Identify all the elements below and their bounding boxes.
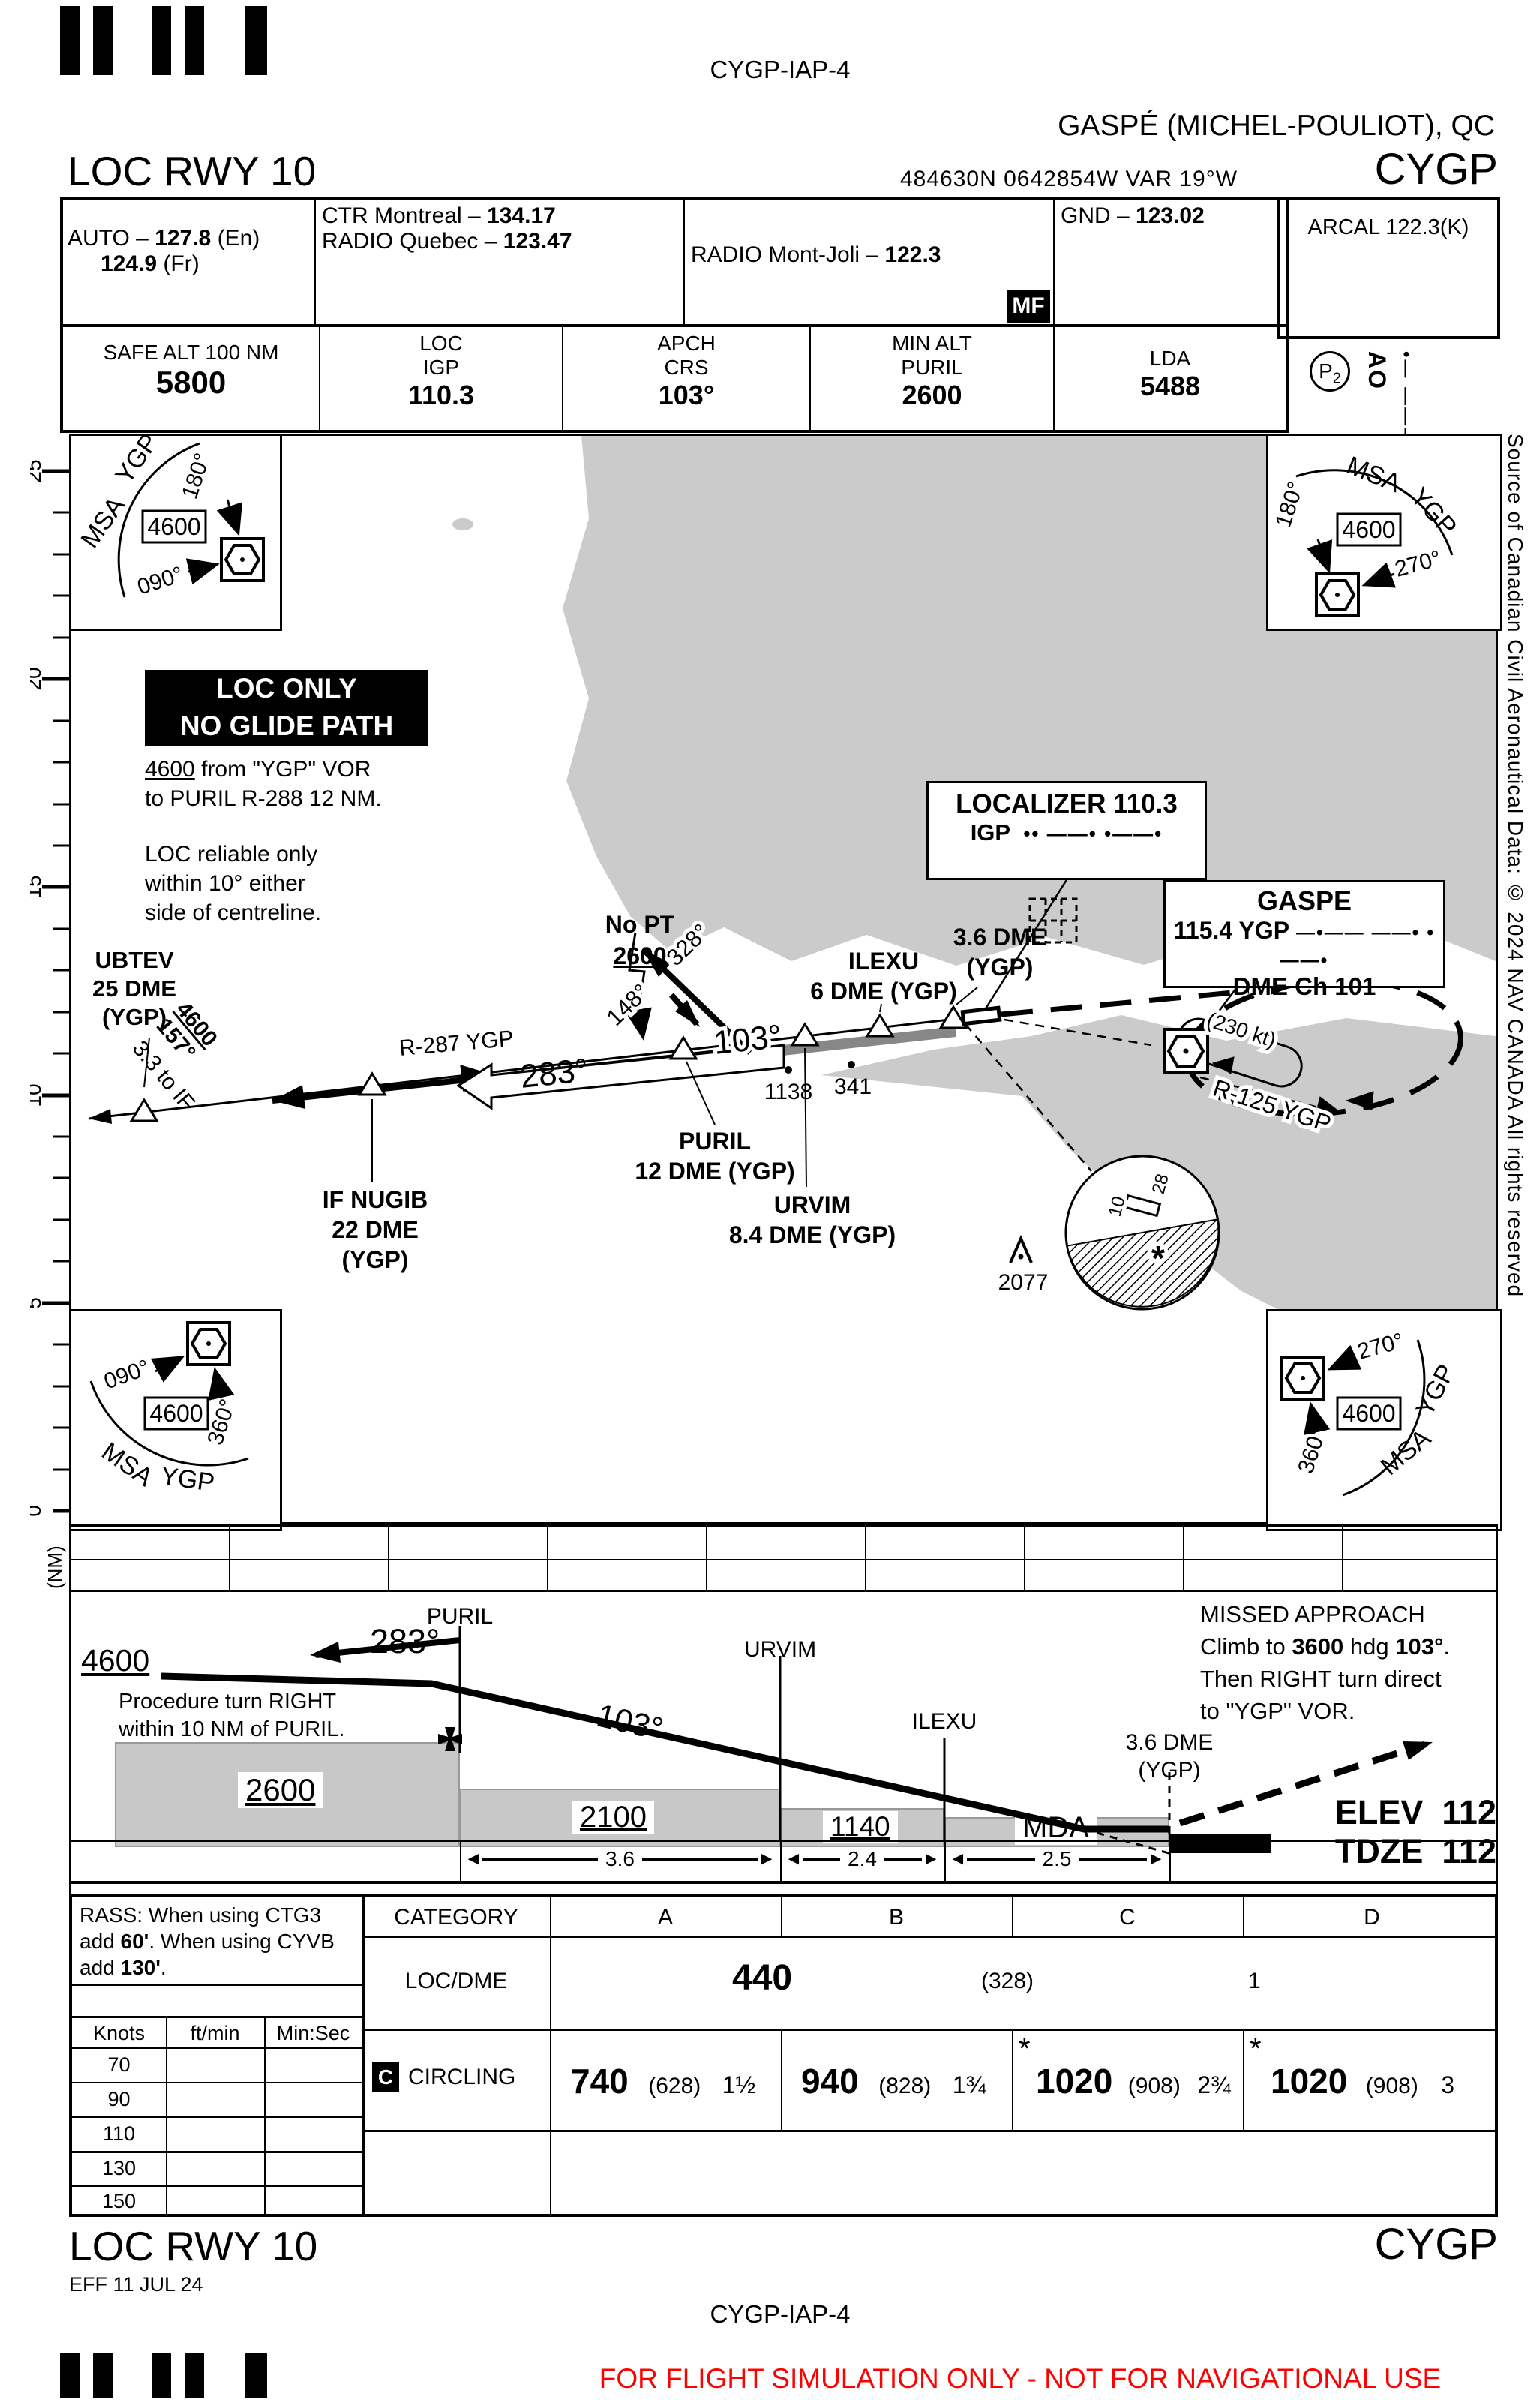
distance-2-4: 2.4 — [848, 1847, 877, 1871]
arcal-morse: •— ——— — [1395, 351, 1416, 377]
rass-l2post: . When using CYVB — [149, 1930, 334, 1953]
circling-c-mda: 1020 — [1036, 2062, 1112, 2101]
circling-label: CIRCLING — [408, 2065, 515, 2090]
gaspe-dme-channel: DME Ch 101 — [1166, 972, 1443, 1001]
msa-bearing-360: 360° — [1293, 1425, 1331, 1476]
arcal-ident: AO — [1363, 351, 1391, 384]
lda-box: LDA 5488 — [1055, 327, 1286, 430]
ygp-vordme-symbol — [1164, 1029, 1208, 1073]
elev-value: 112 — [1442, 1793, 1496, 1831]
rass-l2pre: add — [80, 1930, 121, 1953]
msa-navaid: YGP — [110, 436, 164, 489]
comm-ctr: CTR Montreal – 134.17 RADIO Quebec – 123… — [316, 200, 685, 324]
radio-quebec-freq: 123.47 — [503, 229, 572, 254]
procedure-turn-note: Procedure turn RIGHT within 10 NM of PUR… — [119, 1688, 344, 1744]
spot-elevation-341: 341 — [823, 1074, 883, 1100]
elev-label: ELEV — [1335, 1793, 1424, 1831]
ruler-20: 20 — [30, 667, 45, 690]
ctr-label: CTR Montreal – — [322, 203, 487, 228]
rass-l3bold: 130' — [121, 1956, 161, 1979]
reliability-line3: side of centreline. — [145, 898, 321, 927]
mf-badge: MF — [1007, 290, 1050, 323]
circling-cat-b: 940 (828) 1¾ — [801, 2061, 986, 2101]
arcal-box: ARCAL 122.3(K) — [1277, 197, 1500, 339]
puril-name: PURIL — [602, 1126, 827, 1156]
obstacle-symbol — [1010, 1239, 1031, 1263]
chart-id-top: CYGP-IAP-4 — [555, 56, 1005, 84]
nopt-label: No PT 2600 — [593, 909, 686, 972]
radio-quebec-label: RADIO Quebec – — [322, 229, 503, 254]
locdme-mda: 440 — [732, 1957, 792, 1999]
procedure-title: LOC RWY 10 — [68, 147, 316, 195]
safe-alt-value: 5800 — [63, 365, 319, 401]
ubtev-name: UBTEV — [82, 946, 187, 975]
circling-a-mda: 740 — [571, 2062, 629, 2101]
faf-maltese-cross — [438, 1727, 462, 1751]
p2-number: 2 — [1333, 371, 1341, 387]
nugib-name: IF NUGIB — [296, 1185, 454, 1215]
category-c: C — [1012, 1905, 1243, 1930]
msa-inset-topright: 4600 MSA YGP 180° 270° — [1266, 434, 1502, 631]
gaspe-name: GASPE — [1166, 885, 1443, 917]
circling-d-hat: (908) — [1366, 2074, 1418, 2098]
note-line2: to PURIL R-288 12 NM. — [145, 784, 382, 813]
nugib-label: IF NUGIB 22 DME (YGP) — [296, 1185, 454, 1275]
runway-profile-bar — [1169, 1834, 1271, 1853]
airport-icao-bottom: CYGP — [1375, 2219, 1498, 2269]
distance-puril-urvim: ◄3.6► — [461, 1840, 779, 1879]
speed-row-90: 90 — [72, 2088, 166, 2111]
speed-row-130: 130 — [72, 2157, 166, 2180]
gaspe-vor-box: GASPE 115.4 YGP —•—— ——• •——• DME Ch 101 — [1163, 880, 1445, 988]
dme36-profile-label: 3.6 DME (YGP) — [1113, 1729, 1226, 1784]
airport-coordinates: 484630N 0642854W VAR 19°W — [900, 167, 1238, 192]
airport-star: * — [1151, 1239, 1165, 1278]
spot-elevation-1138-dot — [785, 1066, 792, 1074]
apch-crs-box: APCH CRS 103° — [563, 327, 811, 430]
circling-cat-c: 1020 (908) 2¾ — [1036, 2061, 1231, 2101]
ubtev-dme: 25 DME — [82, 975, 187, 1003]
circling-d-star: * — [1250, 2032, 1262, 2066]
registration-barcode-bottom — [60, 2353, 267, 2398]
comm-auto: AUTO – 127.8 (En) 124.9 (Fr) — [63, 200, 316, 324]
reliability-line1: LOC reliable only — [145, 840, 321, 869]
loc-reliability-note: LOC reliable only within 10° either side… — [145, 840, 321, 927]
category-b: B — [781, 1905, 1012, 1930]
speed-row-150: 150 — [72, 2190, 166, 2213]
outbound-course-label: 283° — [518, 1052, 590, 1095]
circling-b-mda: 940 — [801, 2062, 859, 2101]
rass-l3post: . — [161, 1956, 167, 1979]
ruler-25: 25 — [30, 459, 45, 482]
r287-label: R-287 YGP — [398, 1026, 515, 1061]
nm-scale-strip — [69, 1524, 1498, 1592]
urvim-label: URVIM 8.4 DME (YGP) — [700, 1190, 925, 1250]
circling-d-vis: 3 — [1441, 2071, 1454, 2098]
pt-note-line2: within 10 NM of PURIL. — [119, 1716, 344, 1744]
ruler-0: 0 — [30, 1505, 45, 1517]
msa-label: MSA — [96, 1437, 158, 1492]
minima-table: RASS: When using CTG3 add 60'. When usin… — [69, 1894, 1498, 2217]
airport-title: GASPÉ (MICHEL-POULIOT), QC — [1058, 110, 1495, 143]
nopt-altitude: 2600 — [593, 940, 686, 972]
dme36-name: 3.6 DME — [940, 922, 1060, 952]
msa-label: MSA — [1376, 1423, 1436, 1481]
msa-altitude: 4600 — [147, 513, 200, 540]
comm-montjoli: RADIO Mont-Joli – 122.3 MF — [685, 200, 1055, 324]
gnd-label: GND – — [1061, 203, 1136, 228]
loc-ident: IGP — [320, 356, 562, 380]
dme36-label: 3.6 DME (YGP) — [940, 922, 1060, 982]
min-alt-value: 2600 — [811, 380, 1053, 411]
msa-navaid: YGP — [1405, 482, 1462, 542]
speed-header-knots: Knots — [72, 2022, 166, 2045]
msa-bearing-270: 270° — [1355, 1329, 1406, 1365]
circling-b-vis: 1¾ — [953, 2071, 986, 2098]
circling-a-vis: 1½ — [722, 2071, 755, 2098]
localizer-info-box: LOCALIZER 110.3 IGP •• ——• •——• — [926, 781, 1207, 880]
localizer-ident: IGP — [971, 819, 1010, 846]
category-header: CATEGORY — [362, 1905, 550, 1930]
profile-view: 2600 2100 1140 MDA PURIL 4600 283° Proce… — [69, 1592, 1498, 1894]
pt-note-line1: Procedure turn RIGHT — [119, 1688, 344, 1716]
msa-bearing-180: 180° — [177, 450, 215, 502]
circling-c-hat: (908) — [1128, 2074, 1181, 2098]
missed-climb-pre: Climb to — [1200, 1633, 1292, 1660]
registration-barcode-top — [60, 6, 267, 75]
circling-label-cell: C CIRCLING — [372, 2062, 515, 2092]
ilexu-profile-label: ILEXU — [897, 1709, 992, 1735]
radio-montjoli-label: RADIO Mont-Joli – — [691, 242, 884, 267]
p2-symbol: P2 — [1310, 351, 1350, 392]
plan-view: 10 28 * — [69, 434, 1498, 1524]
msa-bearing-180: 180° — [1271, 479, 1309, 530]
reliability-line2: within 10° either — [145, 869, 321, 898]
msa-inset-bottomleft: 4600 MSA YGP 090° 360° — [69, 1309, 282, 1531]
msa-inset-bottomright: 4600 MSA YGP 270° 360° — [1266, 1309, 1502, 1531]
nugib-ref: (YGP) — [296, 1245, 454, 1275]
puril-label: PURIL 12 DME (YGP) — [602, 1126, 827, 1186]
msa-label: MSA — [75, 491, 131, 553]
msa-altitude: 4600 — [1342, 1400, 1395, 1427]
note-rest: from "YGP" VOR — [195, 757, 371, 782]
circling-c-vis: 2¾ — [1197, 2071, 1230, 2098]
nopt-text: No PT — [593, 909, 686, 940]
missed-climb-alt: 3600 — [1292, 1633, 1343, 1660]
apch-label2: CRS — [563, 356, 809, 380]
localizer-morse: •• ——• •——• — [1023, 822, 1163, 845]
procedure-title-bottom: LOC RWY 10 — [69, 2222, 317, 2270]
circling-cat-a: 740 (628) 1½ — [571, 2061, 755, 2101]
dme36-ref: (YGP) — [940, 952, 1060, 982]
comm-table: AUTO – 127.8 (En) 124.9 (Fr) CTR Montrea… — [60, 197, 1289, 433]
lda-value: 5488 — [1055, 371, 1286, 402]
msa-label: MSA — [1343, 451, 1405, 498]
rass-l3pre: add — [80, 1956, 121, 1979]
airport-symbol: 10 28 * — [1066, 1156, 1219, 1309]
comm-gnd: GND – 123.02 — [1055, 200, 1286, 324]
circling-d-mda: 1020 — [1271, 2062, 1347, 2101]
rass-line1: RASS: When using CTG3 — [80, 1902, 357, 1928]
profile-outbound-course: 283° — [370, 1622, 440, 1661]
auto-freq-en: 127.8 — [155, 226, 211, 251]
urvim-name: URVIM — [700, 1190, 925, 1220]
msa-altitude: 4600 — [1342, 516, 1395, 543]
msa-navaid: YGP — [159, 1461, 216, 1497]
loc-freq-box: LOC IGP 110.3 — [320, 327, 563, 430]
dme36-profile-line2: (YGP) — [1113, 1756, 1226, 1784]
radio-montjoli-freq: 122.3 — [884, 242, 941, 267]
rass-l2bold: 60' — [121, 1930, 149, 1953]
msa-bearing-090: 090° — [101, 1355, 153, 1394]
locdme-hat: (328) — [981, 1969, 1034, 1994]
simulation-disclaimer: FOR FLIGHT SIMULATION ONLY - NOT FOR NAV… — [540, 2363, 1500, 2395]
category-d: D — [1243, 1905, 1501, 1930]
obstacle-elevation: 2077 — [987, 1270, 1059, 1296]
gnd-freq: 123.02 — [1136, 203, 1205, 228]
localizer-freq: LOCALIZER 110.3 — [929, 789, 1205, 819]
circling-badge: C — [372, 2062, 399, 2092]
ruler-15: 15 — [30, 875, 45, 898]
locdme-label: LOC/DME — [362, 1969, 550, 1994]
missed-title: MISSED APPROACH — [1200, 1598, 1500, 1630]
missed-line4: to "YGP" VOR. — [1200, 1695, 1500, 1727]
urvim-profile-label: URVIM — [733, 1637, 827, 1663]
airport-icao: CYGP — [1375, 144, 1498, 194]
distance-ilexu-map: ◄2.5► — [946, 1840, 1168, 1879]
ruler-10: 10 — [30, 1083, 45, 1107]
apch-label1: APCH — [563, 332, 809, 356]
source-note: Source of Canadian Civil Aeronautical Da… — [1503, 434, 1527, 1524]
altitude-note: 4600 from "YGP" VOR to PURIL R-288 12 NM… — [145, 755, 382, 813]
circling-b-hat: (828) — [878, 2074, 931, 2098]
puril-dme: 12 DME (YGP) — [602, 1156, 827, 1186]
safe-alt-label: SAFE ALT 100 NM — [63, 341, 319, 365]
gaspe-freq-ident: 115.4 YGP — [1174, 917, 1289, 944]
missed-approach-text: MISSED APPROACH Climb to 3600 hdg 103°. … — [1200, 1598, 1500, 1727]
locdme-vis: 1 — [1248, 1969, 1261, 1994]
speed-header-ftmin: ft/min — [166, 2022, 264, 2045]
speed-header-minsec: Min:Sec — [264, 2022, 362, 2045]
missed-climb-hdg: 103° — [1395, 1633, 1443, 1660]
distance-urvim-ilexu: ◄2.4► — [782, 1840, 943, 1879]
min-alt-fix: PURIL — [811, 356, 1053, 380]
min-alt-box: MIN ALT PURIL 2600 — [811, 327, 1055, 430]
ruler-5: 5 — [30, 1297, 45, 1309]
speed-row-110: 110 — [72, 2122, 166, 2146]
inbound-course-label: 103° — [712, 1018, 784, 1062]
loc-only-line2: NO GLIDE PATH — [145, 707, 428, 745]
apch-crs-value: 103° — [563, 380, 809, 411]
auto-lang-fr: (Fr) — [157, 251, 200, 276]
msa-navaid: YGP — [1411, 1360, 1461, 1421]
speed-row-70: 70 — [72, 2053, 166, 2077]
loc-freq-value: 110.3 — [320, 380, 562, 411]
msa-altitude: 4600 — [149, 1400, 203, 1427]
loc-only-line1: LOC ONLY — [145, 670, 428, 707]
chart-id-bottom: CYGP-IAP-4 — [555, 2300, 1005, 2329]
distance-3-6: 3.6 — [605, 1847, 635, 1871]
msa-inset-topleft: 4600 MSA YGP 180° 090° — [69, 434, 282, 631]
msa-bearing-270: 270° — [1392, 546, 1443, 582]
msa-bearing-090: 090° — [134, 562, 186, 600]
nugib-dme: 22 DME — [296, 1215, 454, 1245]
distance-2-5: 2.5 — [1043, 1847, 1072, 1871]
auto-lang-en: (En) — [211, 226, 260, 251]
safe-alt-box: SAFE ALT 100 NM 5800 — [63, 327, 320, 430]
arcal-label: ARCAL 122.3(K) — [1280, 215, 1497, 240]
effective-date: EFF 11 JUL 24 — [69, 2273, 203, 2296]
missed-climb-post: . — [1443, 1633, 1450, 1660]
circling-c-star: * — [1019, 2032, 1031, 2066]
distance-ruler: 25 20 15 10 5 0 — [30, 434, 69, 1524]
p2-letter: P — [1319, 359, 1333, 383]
loc-label1: LOC — [320, 332, 562, 356]
spot-elevation-1138: 1138 — [751, 1080, 826, 1105]
approach-plate: CYGP-IAP-4 GASPÉ (MICHEL-POULIOT), QC LO… — [0, 0, 1540, 2400]
urvim-dme: 8.4 DME (YGP) — [700, 1220, 925, 1250]
note-altitude: 4600 — [145, 757, 195, 782]
dme36-profile-line1: 3.6 DME — [1113, 1729, 1226, 1756]
spot-elevation-341-dot — [848, 1061, 855, 1068]
profile-start-altitude: 4600 — [81, 1643, 149, 1678]
gaspe-morse: —•—— ——• •——• — [1280, 922, 1436, 971]
course-arrowhead — [89, 1109, 112, 1124]
rass-note: RASS: When using CTG3 add 60'. When usin… — [80, 1902, 357, 1981]
lda-label: LDA — [1055, 347, 1286, 371]
pt-148-label: 148° — [602, 978, 654, 1031]
circling-a-hat: (628) — [648, 2074, 701, 2098]
ruler-unit: (NM) — [44, 1521, 67, 1589]
category-a: A — [550, 1905, 781, 1930]
missed-climb-mid: hdg — [1343, 1633, 1395, 1660]
auto-label: AUTO – — [68, 226, 155, 251]
circling-cat-d: 1020 (908) 3 — [1271, 2061, 1454, 2101]
loc-only-banner: LOC ONLY NO GLIDE PATH — [145, 670, 428, 746]
ctr-freq: 134.17 — [487, 203, 556, 228]
runway-symbol — [962, 1008, 1000, 1023]
auto-freq-fr: 124.9 — [101, 251, 157, 276]
missed-line3: Then RIGHT turn direct — [1200, 1663, 1500, 1695]
arcal-ident-symbol: P2 AO •— ——— — [1310, 351, 1416, 426]
min-alt-label1: MIN ALT — [811, 332, 1053, 356]
